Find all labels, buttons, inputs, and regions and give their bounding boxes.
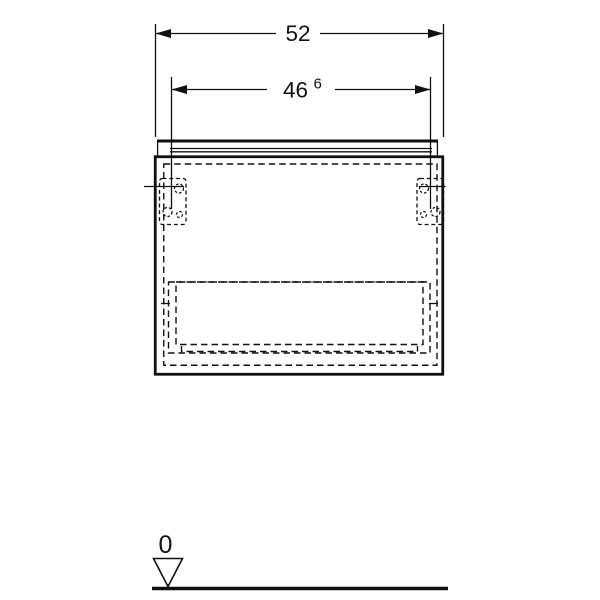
dimension-inner-label: 46 6	[283, 76, 322, 103]
dimension-overall-label: 52	[285, 21, 310, 46]
bracket-screw-hole	[420, 184, 429, 193]
cabinet-body-outline	[155, 157, 443, 375]
drawer-bottom-rail	[182, 346, 418, 352]
bracket-screw-hole	[177, 212, 183, 218]
arrowhead-left-icon	[156, 29, 172, 38]
cabinet-dimension-drawing: 52 46 6	[0, 0, 600, 600]
mounting-bracket-left	[144, 179, 186, 225]
dimension-inner-value: 46	[283, 78, 308, 103]
arrowhead-right-icon	[428, 29, 444, 38]
drawer-outer-box	[169, 282, 431, 353]
drawer-inner-box	[176, 282, 423, 345]
technical-drawing-canvas: 52 46 6	[0, 0, 600, 600]
floor-datum: 0	[152, 531, 448, 589]
carcass-hidden-outline	[164, 164, 437, 365]
datum-triangle-icon	[154, 559, 183, 587]
cabinet-front-view	[144, 141, 446, 374]
dimension-inner-superscript: 6	[313, 76, 321, 93]
mounting-bracket-right	[417, 179, 446, 225]
drawer-hidden-outline	[161, 282, 438, 353]
arrowhead-right-icon	[415, 85, 431, 94]
arrowhead-left-icon	[172, 85, 188, 94]
bracket-screw-hole	[431, 208, 440, 217]
bracket-screw-hole	[175, 184, 184, 193]
datum-zero-label: 0	[159, 531, 173, 559]
bracket-screw-hole	[421, 212, 427, 218]
